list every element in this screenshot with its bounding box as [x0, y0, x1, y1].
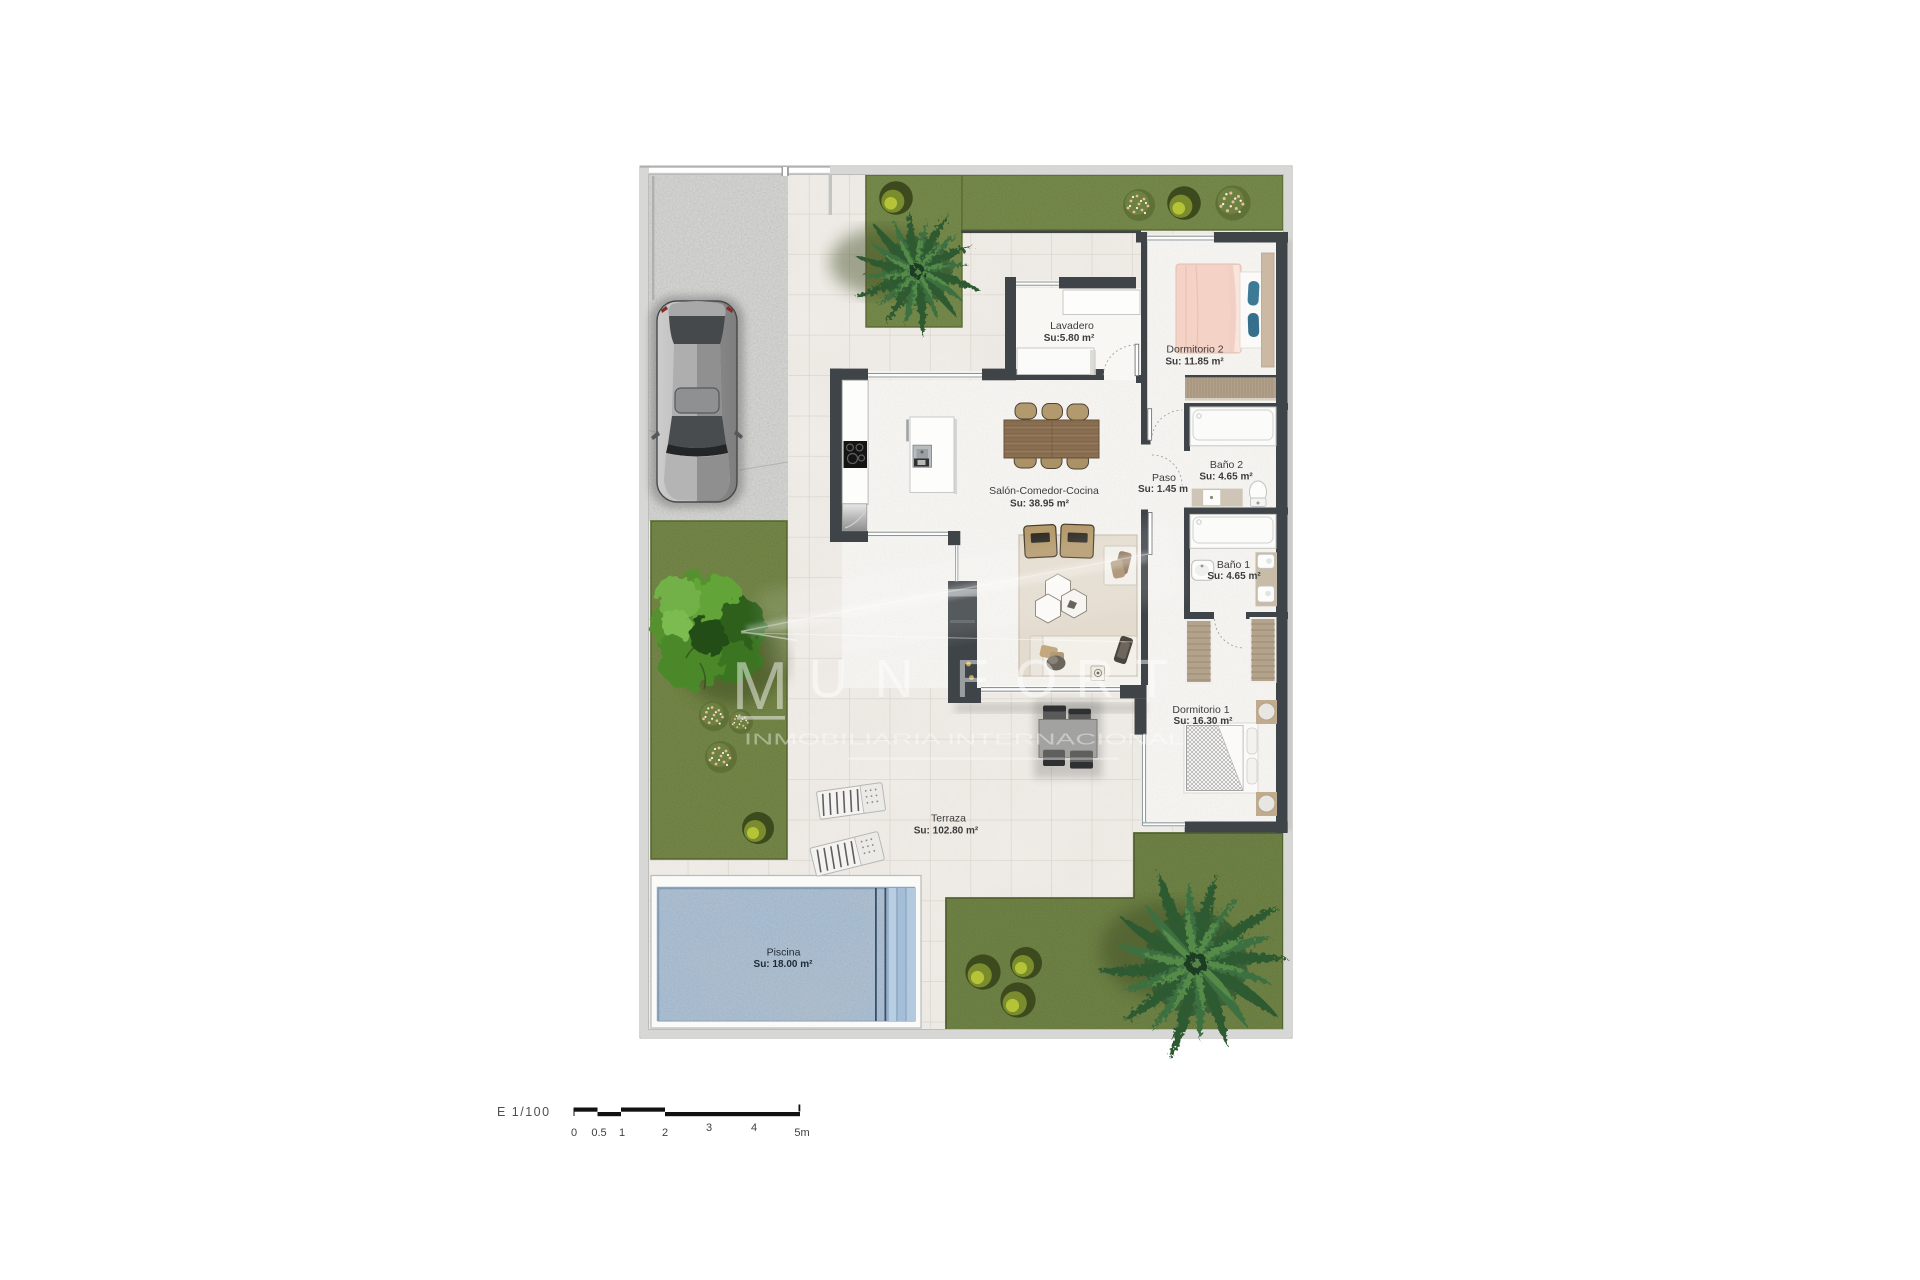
- svg-text:Su: 18.00 m²: Su: 18.00 m²: [754, 959, 814, 970]
- svg-text:INMOBILIARIA INTERNACIONAL: INMOBILIARIA INTERNACIONAL: [744, 732, 1185, 749]
- svg-text:Su: 102.80 m²: Su: 102.80 m²: [914, 826, 979, 837]
- svg-text:N: N: [875, 649, 914, 709]
- svg-text:0.5: 0.5: [591, 1127, 606, 1139]
- svg-text:U: U: [809, 649, 848, 709]
- svg-text:5m: 5m: [794, 1127, 809, 1139]
- svg-text:Su: 4.65 m²: Su: 4.65 m²: [1199, 472, 1253, 483]
- svg-text:2: 2: [662, 1127, 668, 1139]
- svg-text:Baño 2: Baño 2: [1210, 459, 1243, 471]
- svg-text:4: 4: [751, 1122, 757, 1134]
- svg-text:1: 1: [619, 1127, 625, 1139]
- svg-text:E 1/100: E 1/100: [497, 1105, 551, 1119]
- svg-text:O: O: [1015, 649, 1057, 709]
- svg-text:Su: 1.45 m: Su: 1.45 m: [1138, 484, 1188, 495]
- svg-text:T: T: [1136, 649, 1169, 709]
- svg-text:Piscina: Piscina: [767, 947, 801, 959]
- svg-text:F: F: [956, 649, 989, 709]
- svg-text:Su: 4.65 m²: Su: 4.65 m²: [1207, 571, 1261, 582]
- svg-text:Baño 1: Baño 1: [1217, 559, 1250, 571]
- svg-text:Lavadero: Lavadero: [1050, 320, 1094, 332]
- svg-text:Paso: Paso: [1152, 472, 1176, 484]
- svg-text:Terraza: Terraza: [931, 813, 966, 825]
- svg-text:Dormitorio 2: Dormitorio 2: [1166, 344, 1223, 356]
- svg-text:M: M: [732, 648, 789, 724]
- svg-text:Dormitorio 1: Dormitorio 1: [1172, 704, 1229, 716]
- svg-text:R: R: [1076, 649, 1115, 709]
- svg-text:0: 0: [571, 1127, 577, 1139]
- svg-text:Su: 38.95 m²: Su: 38.95 m²: [1010, 499, 1070, 510]
- svg-text:Su: 16.30 m²: Su: 16.30 m²: [1174, 716, 1234, 727]
- svg-text:Salón-Comedor-Cocina: Salón-Comedor-Cocina: [989, 485, 1099, 497]
- svg-text:Su:5.80 m²: Su:5.80 m²: [1044, 333, 1095, 344]
- svg-text:3: 3: [706, 1122, 712, 1134]
- svg-text:Su: 11.85 m²: Su: 11.85 m²: [1165, 357, 1224, 368]
